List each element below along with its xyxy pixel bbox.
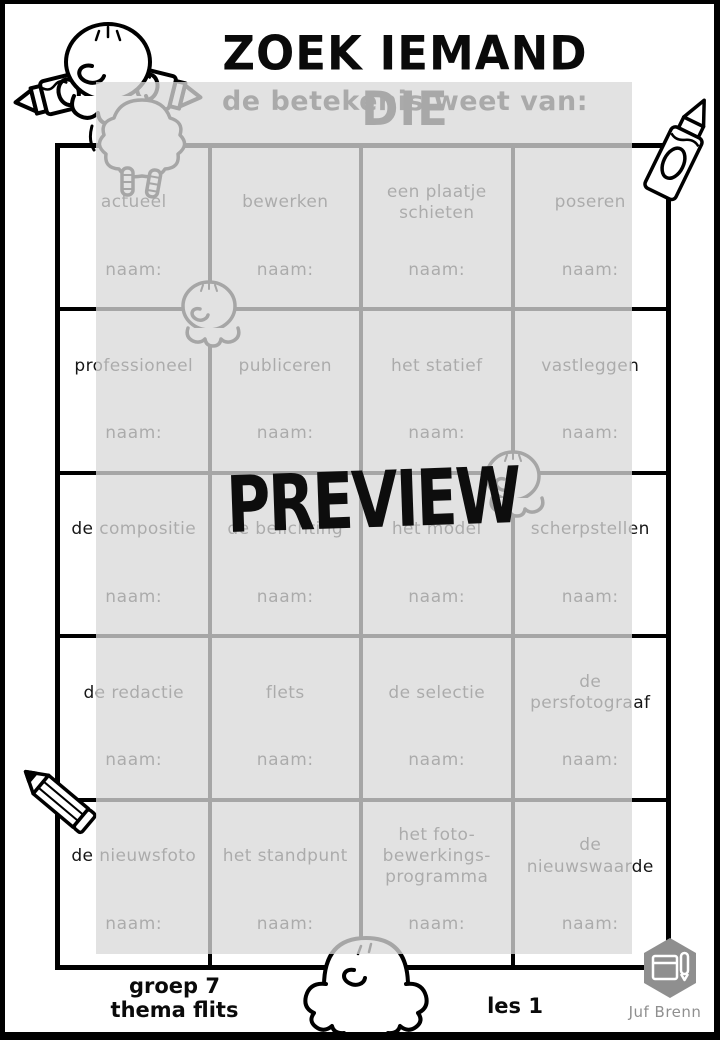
- worksheet-page: ZOEK IEMAND DIE de betekenis weet van: a…: [0, 0, 720, 1040]
- pencil-icon: [14, 742, 100, 854]
- juf-brenn-logo-icon: [641, 937, 699, 999]
- footer-group-theme: groep 7 thema flits: [97, 974, 252, 1022]
- group-label: groep 7: [97, 974, 252, 998]
- preview-watermark: PREVIEW: [212, 450, 535, 552]
- theme-label: thema flits: [97, 998, 252, 1022]
- crayon-icon: [637, 86, 717, 226]
- credit-label: Juf Brenn: [617, 1003, 713, 1021]
- lesson-label: les 1: [460, 994, 570, 1018]
